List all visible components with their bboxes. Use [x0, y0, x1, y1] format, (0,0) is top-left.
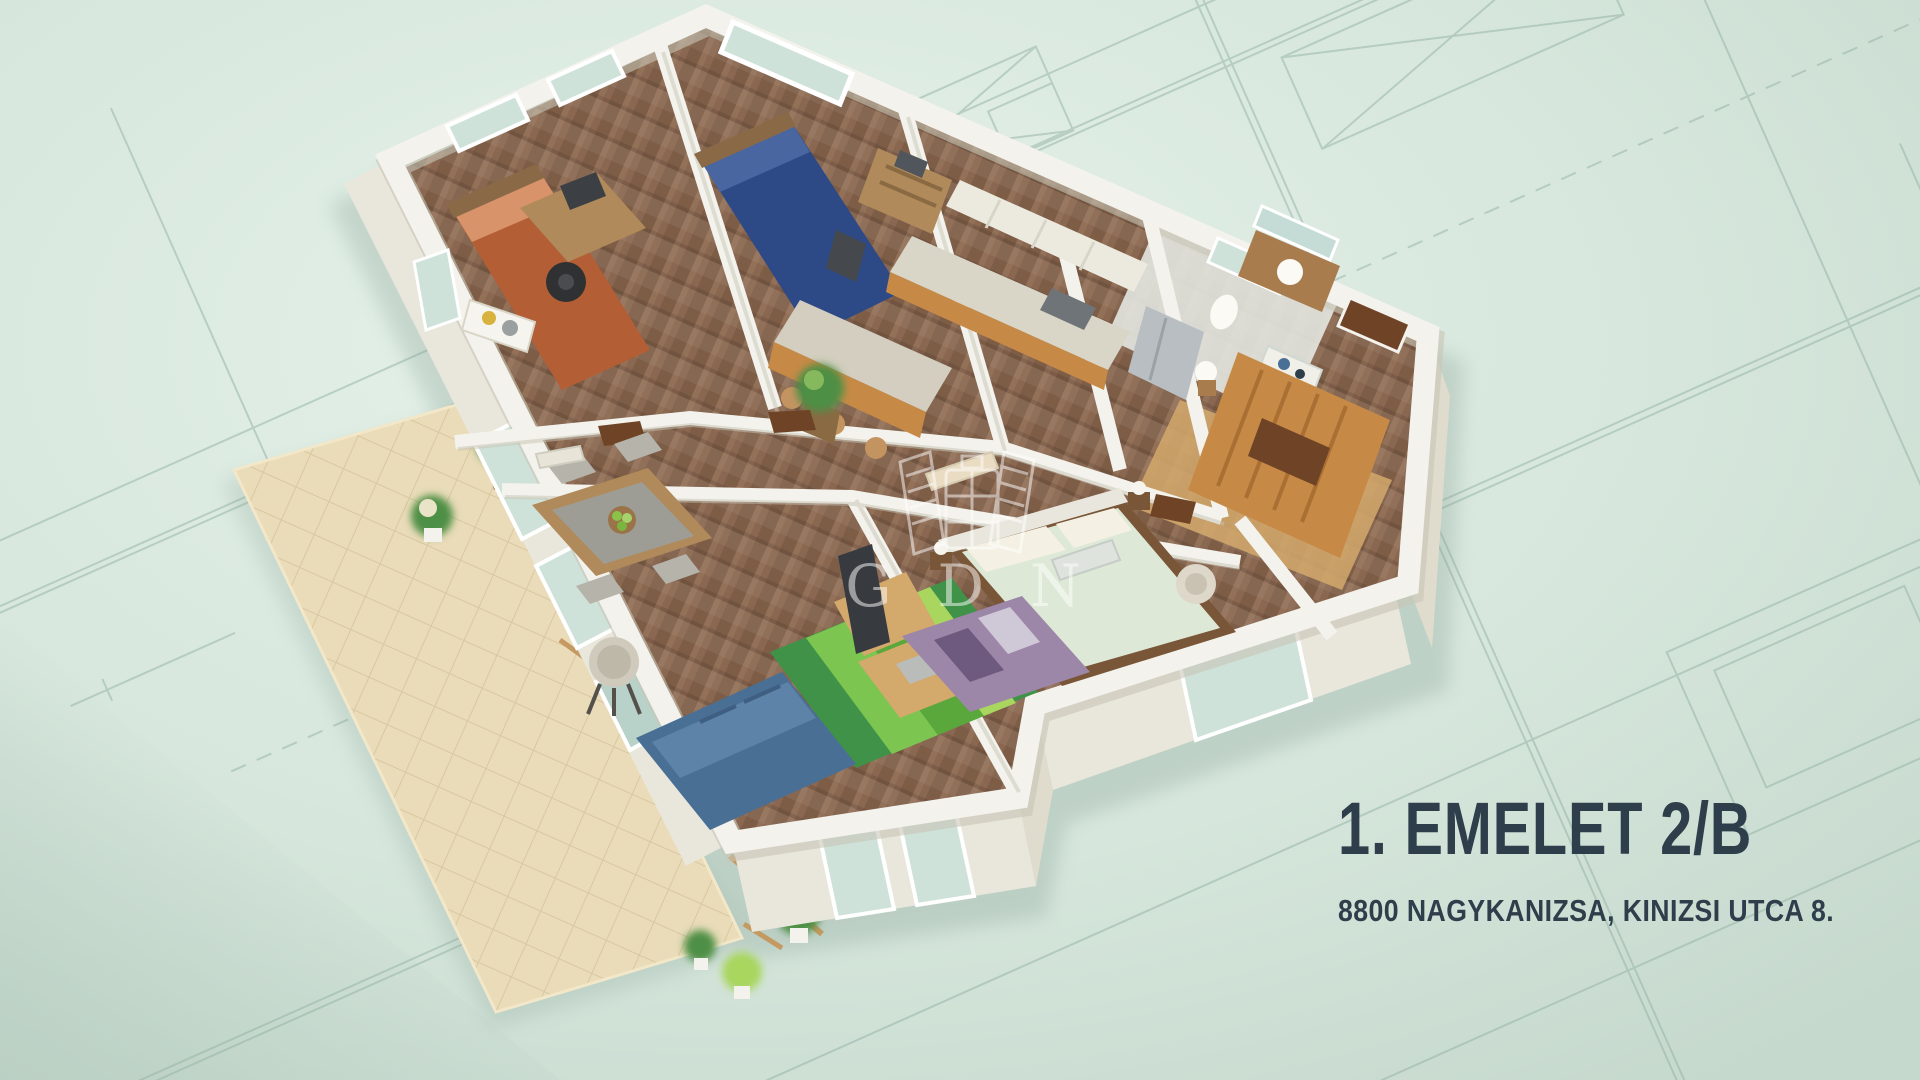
- caption-title: 1. EMELET 2/B: [1338, 786, 1788, 871]
- screenshot-stage: GDN 1. EMELET 2/B 8800 NAGYKANIZSA, KINI…: [0, 0, 1920, 1080]
- basin: [1277, 259, 1303, 285]
- caption-block: 1. EMELET 2/B 8800 NAGYKANIZSA, KINIZSI …: [1338, 786, 1915, 929]
- wc-basin: [1195, 361, 1217, 383]
- lamp: [1132, 481, 1146, 495]
- door: [768, 410, 816, 433]
- caption-address: 8800 NAGYKANIZSA, KINIZSI UTCA 8.: [1338, 893, 1834, 929]
- bar-stool: [865, 437, 887, 459]
- gdn-logo-text: GDN: [845, 552, 1127, 620]
